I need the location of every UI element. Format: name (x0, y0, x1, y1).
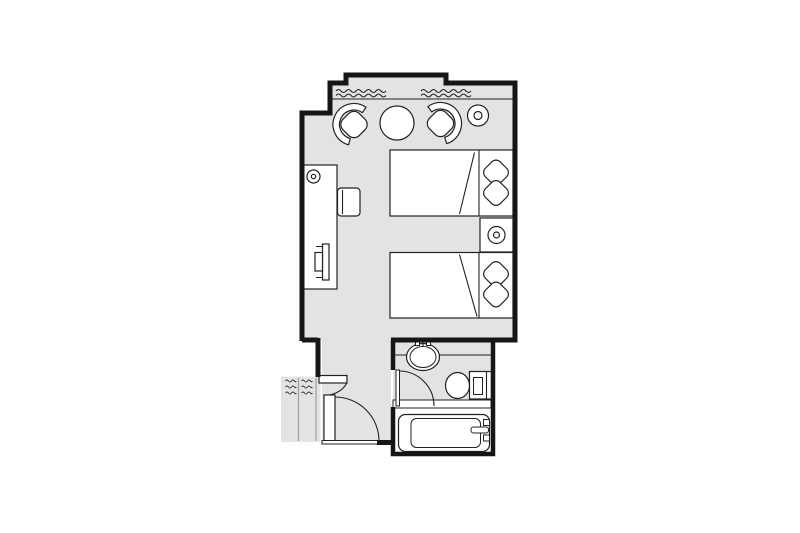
bathroom-divider-wall (393, 400, 491, 408)
closet (281, 377, 321, 443)
twin-bed-upper (390, 150, 513, 216)
desk-chair (338, 188, 361, 216)
threshold (322, 441, 378, 445)
floor-plan-canvas (0, 0, 800, 533)
nightstand (480, 218, 513, 252)
floor-plan (0, 0, 800, 533)
bathtub-icon (399, 415, 490, 452)
floor-lamp-icon (468, 105, 489, 126)
desk-lamp-icon (307, 170, 320, 183)
twin-bed-lower (390, 253, 513, 319)
round-table-icon (380, 106, 414, 140)
